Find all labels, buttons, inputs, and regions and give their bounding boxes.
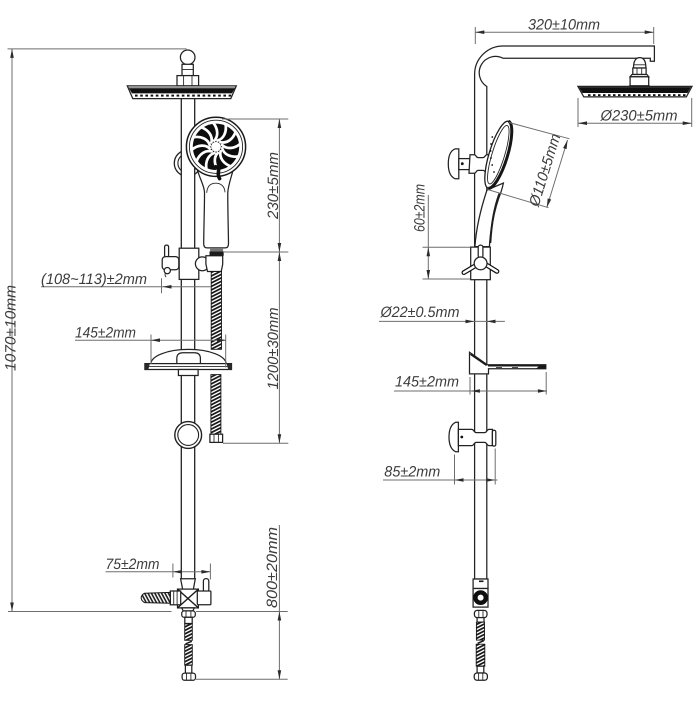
- svg-text:145±2mm: 145±2mm: [395, 374, 459, 391]
- svg-text:Ø22±0.5mm: Ø22±0.5mm: [380, 304, 460, 321]
- svg-text:60±2mm: 60±2mm: [412, 184, 429, 232]
- svg-text:75±2mm: 75±2mm: [106, 556, 160, 573]
- svg-text:230±5mm: 230±5mm: [265, 152, 282, 220]
- svg-text:800±20mm: 800±20mm: [264, 527, 281, 608]
- svg-text:320±10mm: 320±10mm: [528, 17, 600, 34]
- svg-text:85±2mm: 85±2mm: [384, 464, 440, 481]
- svg-text:1070±10mm: 1070±10mm: [3, 285, 20, 371]
- svg-text:1200±30mm: 1200±30mm: [265, 308, 282, 390]
- svg-text:145±2mm: 145±2mm: [75, 324, 136, 341]
- svg-text:Ø230±5mm: Ø230±5mm: [600, 108, 678, 125]
- svg-text:(108~113)±2mm: (108~113)±2mm: [41, 271, 147, 288]
